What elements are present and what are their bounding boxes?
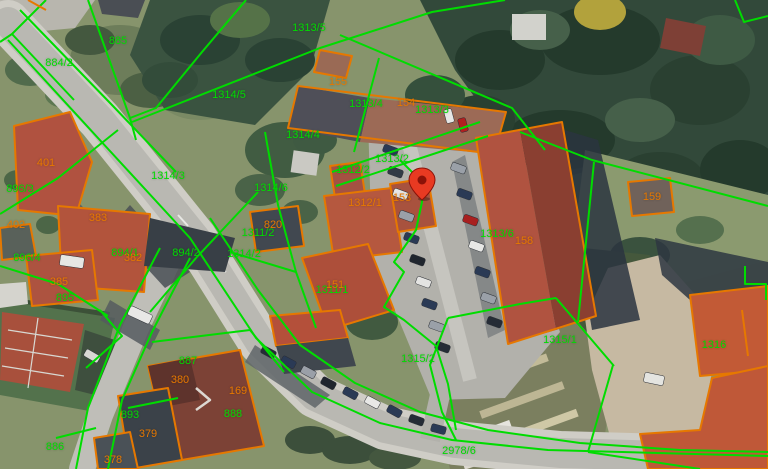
map-canvas[interactable]: 885884/21313/51314/51313/41313/31314/413… [0, 0, 768, 469]
tennis-court [0, 312, 84, 392]
aerial-imagery [0, 0, 768, 469]
building-159 [628, 178, 674, 216]
building-155 [314, 50, 352, 78]
building-1316 [690, 286, 768, 376]
building-820 [250, 206, 304, 252]
building-378 [94, 432, 138, 469]
